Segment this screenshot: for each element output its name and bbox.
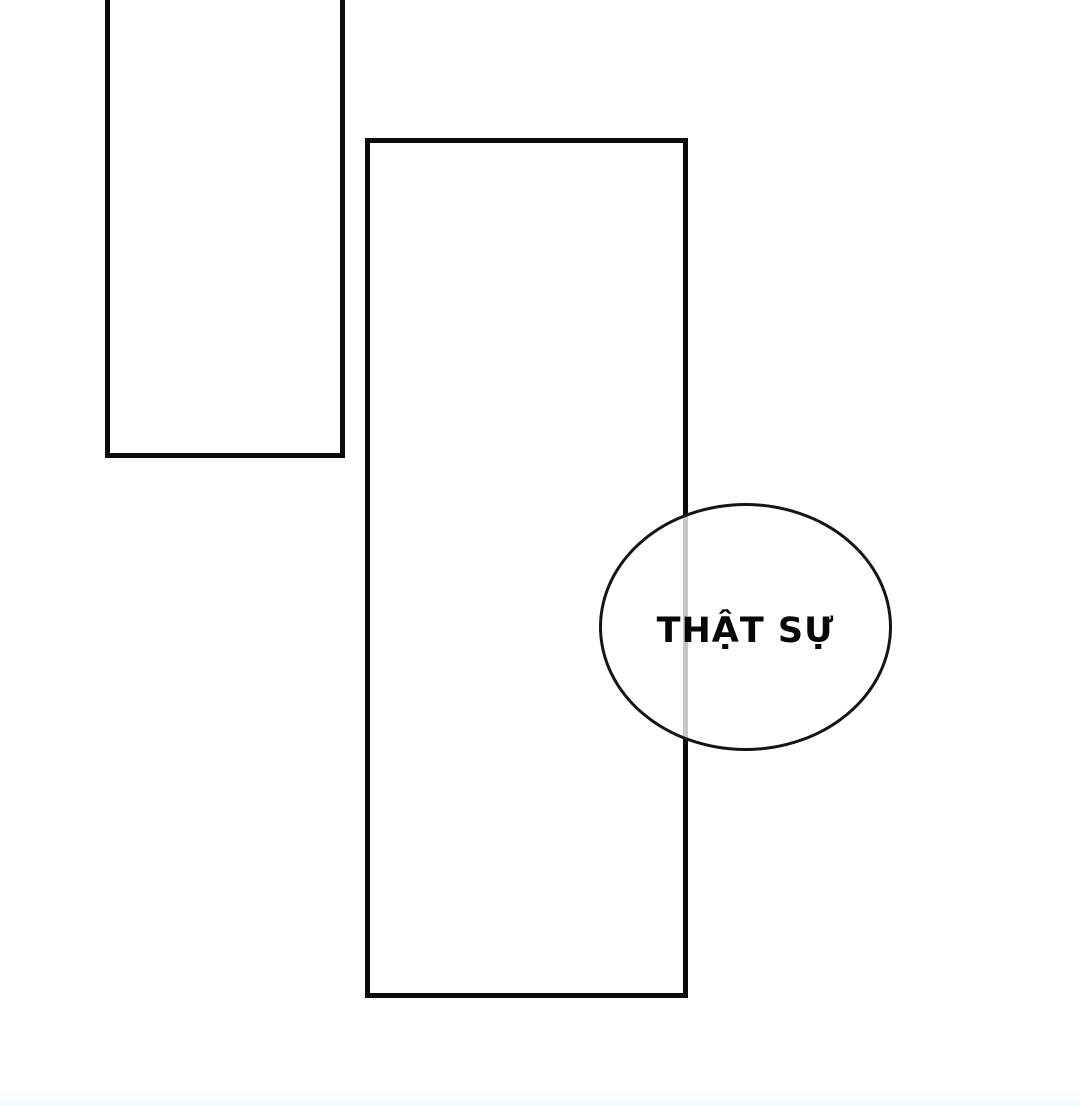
comic-page: THẬT SỰ bbox=[0, 0, 1080, 1106]
bottom-edge-tint bbox=[0, 1090, 1080, 1106]
speech-bubble: THẬT SỰ bbox=[599, 503, 892, 751]
panel-top-left bbox=[105, 0, 345, 458]
speech-bubble-text: THẬT SỰ bbox=[657, 603, 835, 651]
